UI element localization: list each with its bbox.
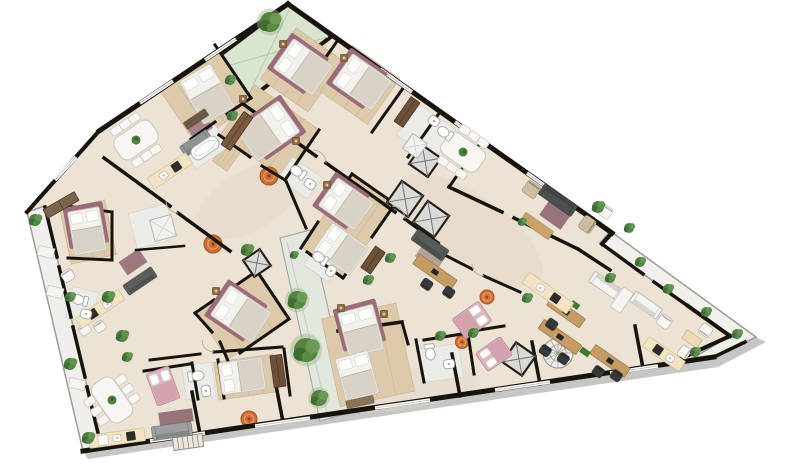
foliage [120,336,125,341]
foliage [526,298,531,303]
pillow [86,210,100,222]
foliage [521,222,525,226]
foliage [267,23,276,32]
rug-center [267,174,270,177]
atrium-tree [285,288,309,312]
plant [624,223,635,233]
rug-center [486,296,489,299]
foliage [439,336,444,341]
foliage [86,438,91,443]
wall-segment [68,258,112,260]
foliage [472,333,477,338]
foliage [736,334,741,339]
foliage [667,289,672,294]
nightstand [293,138,300,145]
rug-center [248,418,251,421]
pillow [223,379,235,392]
floor-plan-page [0,0,787,464]
pillow [70,213,84,225]
foliage [294,301,302,309]
fridge [97,434,108,445]
foliage [367,280,372,285]
nightstand [240,96,247,103]
lamp [326,184,329,187]
sink [201,385,211,397]
lamp [383,313,386,316]
nightstand [213,288,220,295]
foliage [639,262,644,267]
pillow [221,363,233,376]
nightstand [381,311,388,318]
foliage [628,228,633,233]
lamp [295,140,298,143]
foliage [69,297,74,302]
floor-plan [0,0,787,464]
foliage [68,364,73,369]
foliage [389,258,394,263]
nightstand [341,55,348,62]
foliage [705,312,710,317]
foliage [694,352,699,357]
blanket [237,358,265,391]
foliage [126,357,131,362]
foliage [293,255,297,259]
nightstand [324,182,331,189]
foliage [302,351,313,362]
foliage [245,250,250,255]
lamp [215,290,218,293]
bed [218,357,266,395]
atrium-tree [308,387,330,409]
foliage [596,207,601,212]
lamp [242,98,245,101]
sink [443,359,455,369]
lamp [343,57,346,60]
foliage [316,399,323,406]
stove [126,431,136,441]
foliage [106,297,111,302]
terrace-tree [257,9,284,36]
lamp [340,307,343,310]
nightstand [280,41,287,48]
lamp [282,43,285,46]
atrium-tree [290,334,322,366]
rug-center [461,341,463,343]
rug-center [211,242,214,245]
foliage [229,80,234,85]
foliage [231,116,236,121]
foliage [609,278,614,283]
nightstand [338,305,345,312]
round-rug [480,290,494,304]
foliage [33,220,38,225]
